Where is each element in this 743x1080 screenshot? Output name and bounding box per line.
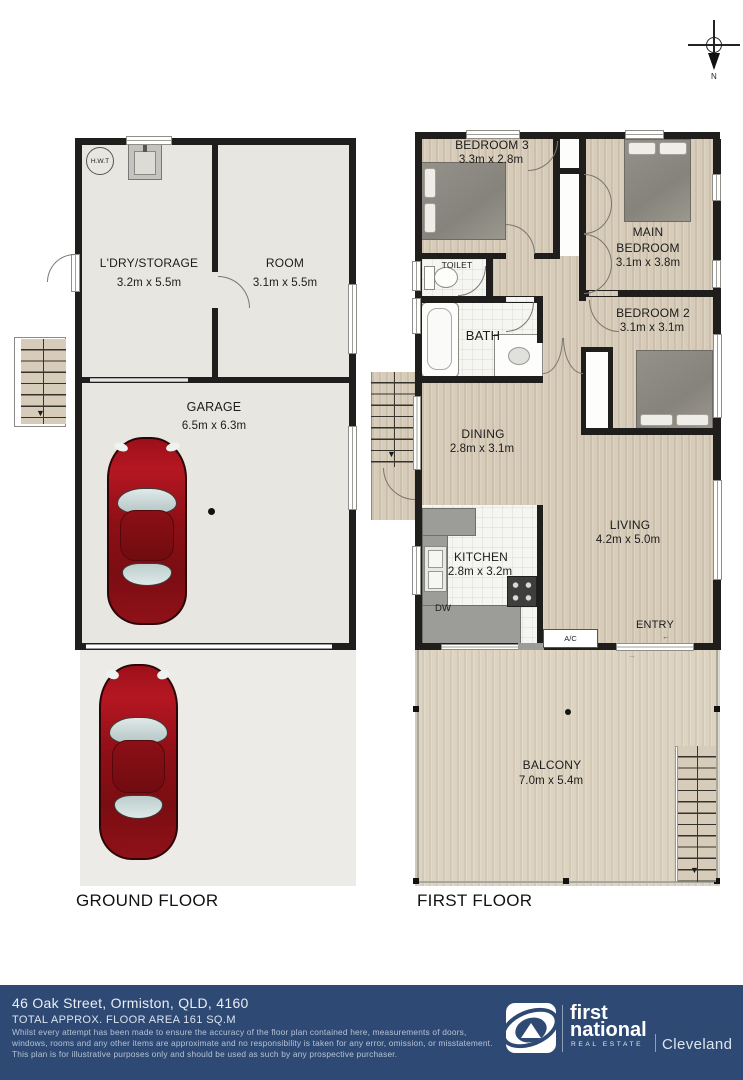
bed-bedroom3 — [421, 162, 506, 240]
brand-office: Cleveland — [662, 1036, 732, 1053]
ac-label: A/C — [564, 634, 577, 643]
room-dims: 3.2m x 5.5m — [117, 277, 181, 289]
stairs-direction-arrow: ▼ — [387, 450, 396, 459]
car-in-garage — [107, 437, 187, 625]
room-name: LIVING — [610, 518, 651, 532]
bathtub-basin — [427, 308, 452, 370]
air-conditioner-unit: A/C — [543, 629, 598, 648]
room-dims: 2.8m x 3.2m — [448, 566, 512, 578]
window — [713, 480, 722, 580]
room-name: GARAGE — [187, 400, 242, 414]
room-name: KITCHEN — [454, 550, 508, 564]
bedroom2-closet — [586, 352, 608, 430]
sliding-door — [348, 426, 357, 510]
balcony-post — [413, 706, 419, 712]
window — [126, 136, 172, 145]
compass-circle — [706, 37, 722, 53]
stairs-direction-arrow: ▼ — [36, 409, 45, 418]
balcony-post — [563, 878, 569, 884]
wall-segment — [553, 139, 560, 259]
pillow — [424, 168, 436, 198]
room-dims: 3.1m x 3.8m — [616, 257, 680, 269]
room-name: ENTRY — [636, 619, 674, 631]
disclaimer-line: This plan is for illustrative purposes o… — [12, 1049, 397, 1059]
wall-segment — [559, 168, 581, 174]
floor-plan-sheet: N ▼ H.W.T — [0, 0, 743, 1080]
disclaimer-line: Whilst every attempt has been made to en… — [12, 1027, 466, 1037]
room-name: L'DRY/STORAGE — [100, 256, 198, 270]
entry-arrow: ← — [662, 633, 670, 641]
sink-basin — [428, 550, 443, 568]
window — [712, 174, 721, 201]
wall-segment — [75, 138, 356, 145]
room-name: ROOM — [266, 256, 304, 270]
room-name: MAIN BEDROOM — [608, 224, 688, 256]
wall-segment — [537, 505, 543, 645]
room-dims: 3.1m x 5.5m — [253, 277, 317, 289]
kitchen-counter — [422, 508, 476, 536]
door-swing — [47, 254, 75, 282]
stairs-center-rail — [697, 746, 698, 882]
bed-main-bedroom — [624, 139, 691, 222]
room-name: BATH — [466, 328, 501, 343]
room-dims: 3.1m x 3.1m — [620, 322, 684, 334]
window — [412, 298, 421, 334]
bed-bedroom2 — [636, 350, 713, 429]
wall-segment — [212, 145, 218, 383]
bathroom-vanity — [494, 334, 543, 378]
bathtub — [421, 302, 459, 378]
laundry-tub — [128, 142, 162, 180]
hot-water-tank: H.W.T — [86, 147, 114, 175]
garage-door — [86, 644, 332, 649]
property-address: 46 Oak Street, Ormiston, QLD, 4160 — [12, 995, 249, 1011]
room-dims: 3.3m x 2.8m — [459, 154, 523, 166]
balcony-post — [714, 706, 720, 712]
entry-arrow: → — [628, 652, 636, 660]
window — [412, 546, 421, 595]
window — [348, 284, 357, 354]
stove-cooktop — [507, 576, 537, 607]
room-name: BEDROOM 3 — [455, 138, 529, 152]
car-rear-window — [122, 563, 172, 586]
room-dims: 7.0m x 5.4m — [519, 775, 583, 787]
window — [412, 261, 421, 291]
wall-segment — [349, 138, 356, 650]
floor-area-text: TOTAL APPROX. FLOOR AREA 161 SQ.M — [12, 1014, 236, 1026]
laundry-tap — [143, 144, 147, 152]
room-name: BEDROOM 2 — [616, 306, 690, 320]
compass-north-arrow-icon — [708, 53, 720, 70]
first-national-logo-icon — [506, 1003, 556, 1053]
window — [712, 260, 721, 288]
stairs-direction-arrow: ▼ — [690, 866, 699, 875]
wall-segment — [75, 138, 82, 650]
wall-segment — [422, 253, 506, 259]
dishwasher-label: DW — [435, 603, 451, 614]
logo-divider — [562, 1005, 563, 1052]
entry-sliding-door — [616, 643, 694, 651]
wall-segment — [581, 428, 720, 435]
balcony-post-dot — [565, 709, 571, 715]
compass-north-label: N — [711, 72, 717, 81]
vanity-sink — [508, 347, 530, 365]
balcony-post — [413, 878, 419, 884]
car-on-driveway — [99, 664, 178, 860]
window — [713, 334, 722, 418]
room-dims: 2.8m x 3.1m — [450, 443, 514, 455]
laundry-tub-basin — [134, 151, 156, 175]
room-name: DINING — [461, 427, 504, 441]
car-roof — [120, 510, 174, 561]
pillow — [424, 203, 436, 233]
disclaimer-line: windows, rooms and any other items are a… — [12, 1038, 493, 1048]
window — [413, 396, 421, 470]
robe-closet — [559, 139, 581, 256]
room-dims: 4.2m x 5.0m — [596, 534, 660, 546]
hwt-label: H.W.T — [91, 158, 109, 165]
toilet-bowl — [434, 267, 458, 288]
brand-divider — [655, 1034, 656, 1052]
sink-basin — [428, 571, 443, 589]
pillow — [659, 142, 687, 155]
kitchen-sink — [424, 546, 447, 592]
balcony-railing — [716, 650, 718, 883]
brand-name-line2: national — [570, 1021, 647, 1039]
garage-light-dot — [208, 508, 215, 515]
wall-segment — [422, 376, 543, 383]
pillow — [640, 414, 673, 426]
window — [441, 644, 519, 650]
wall-segment — [608, 352, 613, 430]
room-dims: 6.5m x 6.3m — [182, 420, 246, 432]
window — [625, 130, 664, 139]
car-roof — [112, 740, 166, 793]
first-floor-title: FIRST FLOOR — [417, 891, 532, 911]
pillow — [628, 142, 656, 155]
room-name: TOILET — [442, 260, 473, 270]
brand-tagline: REAL ESTATE — [571, 1041, 643, 1048]
wall-segment — [537, 303, 543, 343]
counter-edge — [518, 643, 544, 650]
pillow — [676, 414, 709, 426]
wall-opening — [90, 378, 188, 382]
ground-floor-title: GROUND FLOOR — [76, 891, 218, 911]
balcony-railing — [417, 650, 419, 883]
room-name: BALCONY — [523, 758, 582, 772]
